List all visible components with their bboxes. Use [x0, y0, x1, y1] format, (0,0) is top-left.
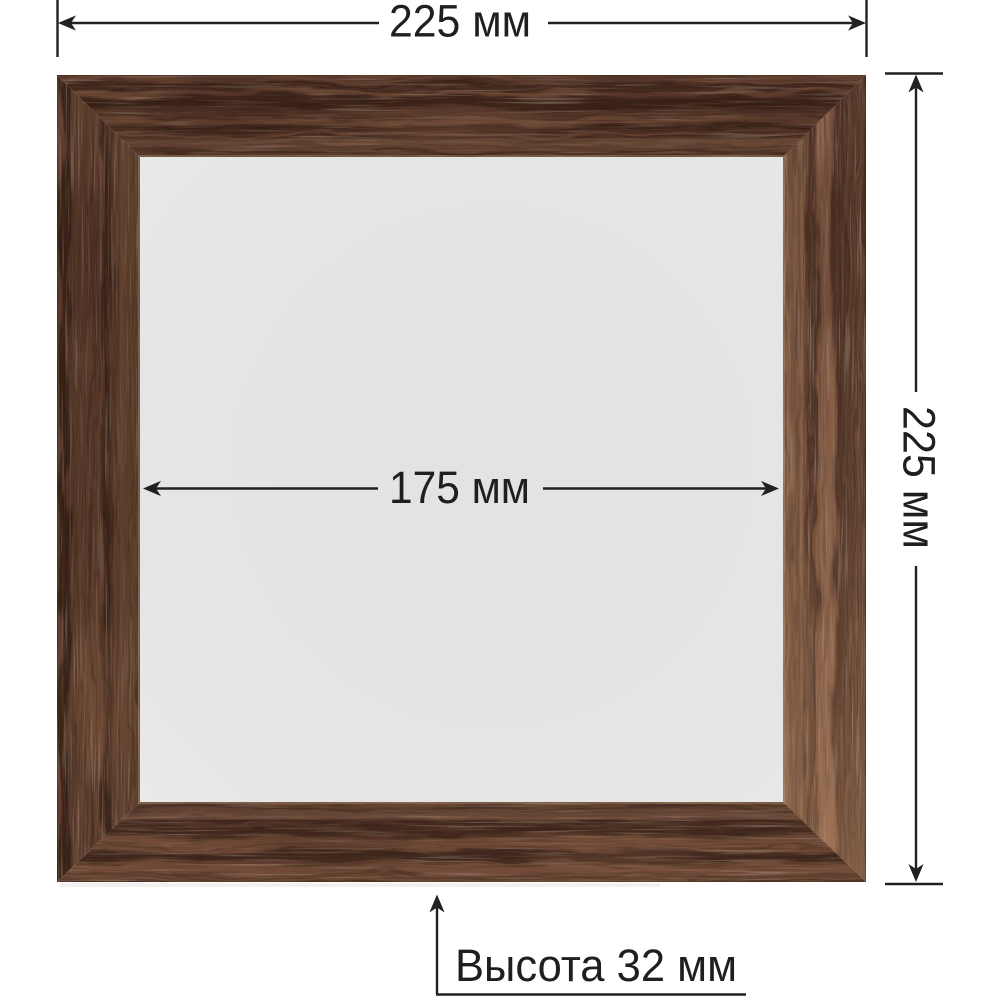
svg-text:225 мм: 225 мм	[894, 406, 945, 549]
svg-text:Высота 32 мм: Высота 32 мм	[455, 940, 737, 991]
svg-text:175 мм: 175 мм	[389, 462, 530, 513]
svg-text:225 мм: 225 мм	[389, 0, 531, 47]
